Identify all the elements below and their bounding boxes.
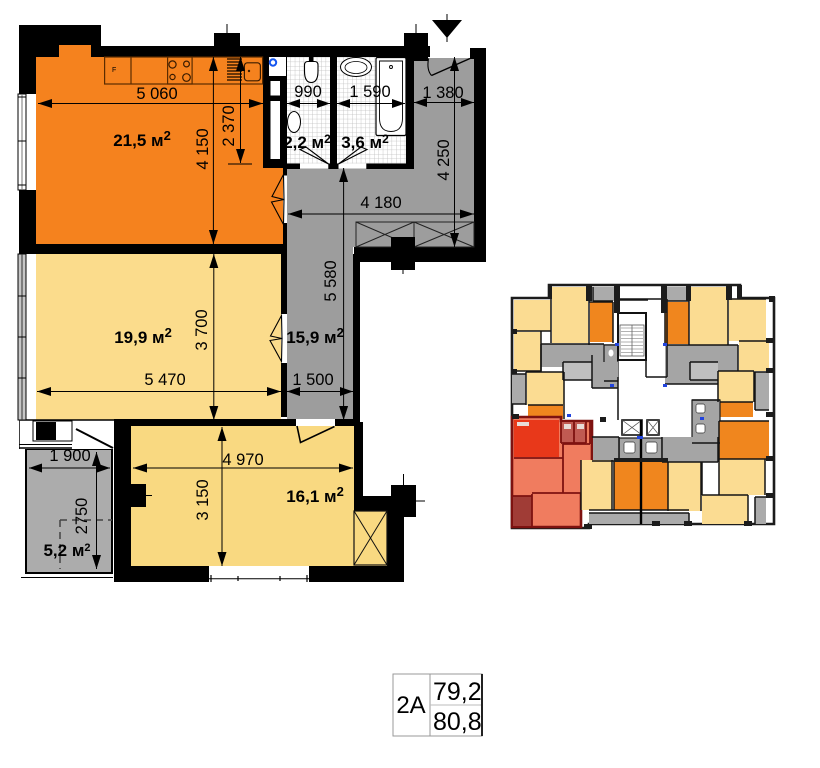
svg-text:1 590: 1 590	[349, 83, 390, 101]
svg-text:2 370: 2 370	[220, 105, 238, 146]
svg-text:21,5 м2: 21,5 м2	[113, 128, 171, 150]
svg-text:3,6 м2: 3,6 м2	[341, 132, 389, 152]
svg-text:5,2 м2: 5,2 м2	[43, 541, 90, 560]
svg-text:5 470: 5 470	[144, 371, 185, 389]
svg-text:4 250: 4 250	[435, 139, 453, 180]
svg-text:4 150: 4 150	[194, 128, 212, 169]
svg-text:19,9 м2: 19,9 м2	[114, 325, 172, 347]
svg-text:5 580: 5 580	[322, 260, 340, 301]
svg-text:1 900: 1 900	[49, 447, 90, 465]
svg-text:4 970: 4 970	[222, 451, 263, 469]
svg-text:F: F	[112, 67, 116, 74]
svg-text:990: 990	[294, 83, 322, 101]
svg-text:16,1 м2: 16,1 м2	[286, 484, 344, 506]
svg-text:3 700: 3 700	[193, 309, 211, 350]
svg-text:2,2 м2: 2,2 м2	[283, 132, 331, 152]
svg-text:1 500: 1 500	[292, 371, 333, 389]
svg-text:2А: 2А	[396, 692, 425, 719]
svg-text:5 060: 5 060	[136, 85, 177, 103]
svg-text:4 180: 4 180	[360, 194, 401, 212]
svg-text:2750: 2750	[73, 498, 91, 535]
svg-text:3 150: 3 150	[194, 479, 212, 520]
svg-text:15,9 м2: 15,9 м2	[286, 325, 344, 347]
svg-text:80,8: 80,8	[433, 708, 482, 736]
svg-text:79,2: 79,2	[433, 678, 482, 706]
svg-text:1 380: 1 380	[422, 84, 463, 102]
